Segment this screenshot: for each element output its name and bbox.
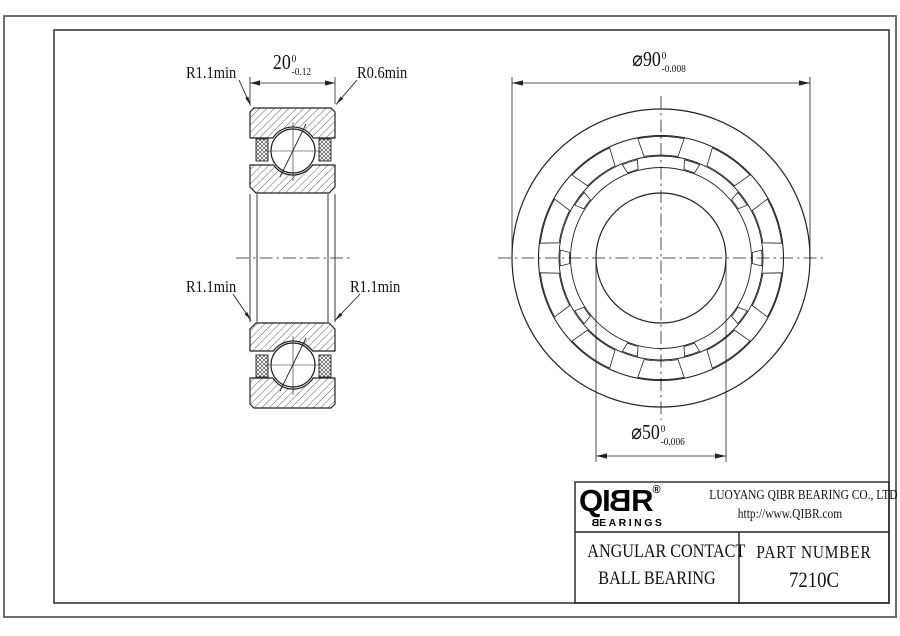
product-name-line2: BALL BEARING [587, 568, 726, 590]
cage-section-top-left [256, 139, 268, 161]
part-number-value: 7210C [750, 567, 878, 593]
cage-section-top-right [319, 139, 331, 161]
qibr-logo-subtext: BEARINGS [589, 517, 664, 529]
page-borders [4, 16, 896, 617]
company-website: http://www.QIBR.com [709, 506, 871, 522]
registered-mark: ® [653, 484, 661, 496]
dimension-width-text: 20 0-0.12 [250, 52, 335, 78]
front-view [498, 77, 823, 462]
dimension-bore-text: ⌀50 0-0.006 [616, 422, 701, 448]
part-number-label: PART NUMBER [750, 542, 878, 563]
radius-label-top-right: R0.6min [357, 63, 407, 83]
qibr-logo-text: QIBR [579, 483, 653, 518]
section-view [236, 77, 350, 408]
cage-section-bottom-right [319, 355, 331, 377]
drawing-canvas [0, 0, 900, 636]
company-name: LUOYANG QIBR BEARING CO., LTD [709, 487, 871, 503]
radius-label-top-left: R1.1min [186, 63, 236, 83]
cage-outer-circle [559, 156, 763, 360]
qibr-logo: QIBR® [579, 485, 661, 516]
dimension-od-text: ⌀90 0-0.008 [617, 49, 702, 75]
cage-section-bottom-left [256, 355, 268, 377]
dimension-width-lines [250, 77, 335, 104]
engineering-drawing-page: R1.1min R0.6min R1.1min R1.1min 20 0-0.1… [0, 0, 900, 636]
radius-label-mid-left: R1.1min [186, 277, 236, 297]
radius-label-mid-right: R1.1min [350, 277, 400, 297]
product-name-line1: ANGULAR CONTACT [587, 541, 726, 563]
